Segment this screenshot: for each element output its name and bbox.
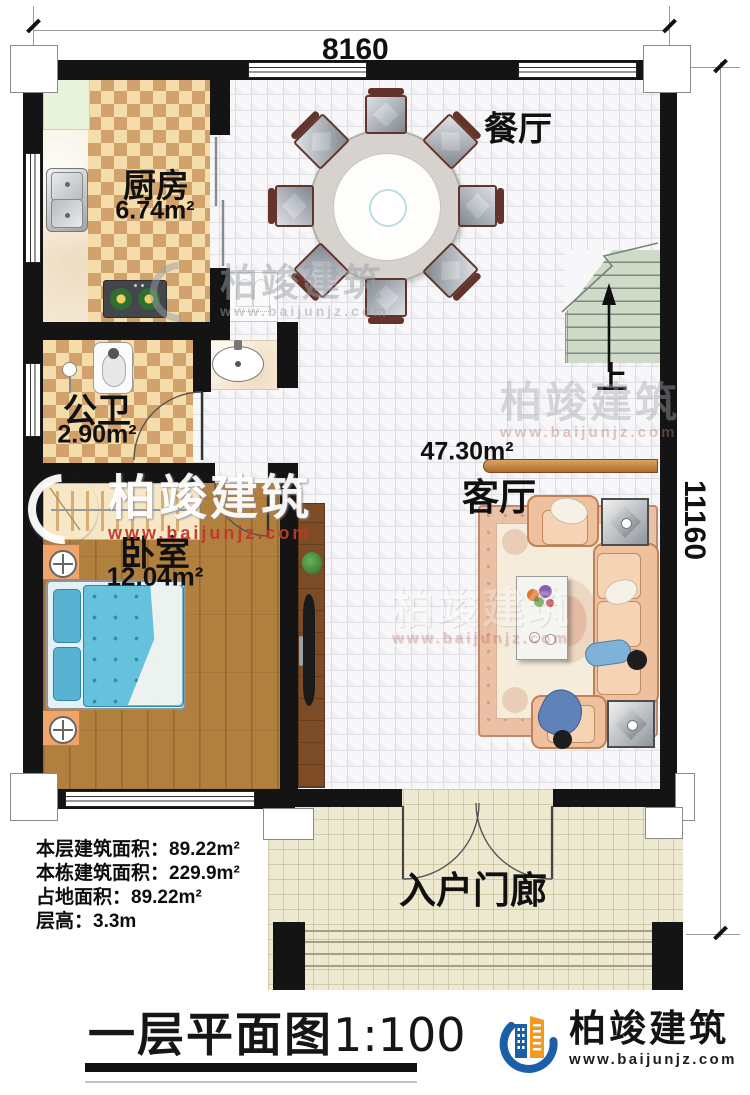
dining-chair: [365, 88, 407, 134]
porch-step: [305, 965, 652, 967]
dining-label: 餐厅: [484, 102, 552, 151]
info-floor-area: 本层建筑面积：89.22m²: [36, 838, 240, 862]
bedroom-area: 12.04m²: [107, 562, 204, 593]
info-floor-height: 层高：3.3m: [36, 910, 240, 934]
nightstand: [42, 710, 80, 746]
porch-pillar-left: [273, 922, 305, 990]
coffee-table: [516, 576, 568, 660]
person-head: [553, 730, 572, 749]
extension-line-right-bottom: [686, 934, 740, 935]
title-underline-thick: [85, 1063, 417, 1072]
axis-box: [10, 45, 58, 93]
extension-line-right-top: [686, 67, 740, 68]
wall-bottom-living-left: [295, 789, 402, 807]
kitchen-stove: [103, 280, 167, 318]
wall-bedroom-top-left: [23, 463, 215, 483]
brand-logo-icon: [497, 1002, 559, 1076]
living-label: 客厅: [462, 467, 536, 521]
plan-title: 一层平面图1:100: [88, 996, 466, 1065]
dimension-height-label: 11160: [677, 480, 711, 560]
info-total-area: 本栋建筑面积：229.9m²: [36, 862, 240, 886]
porch-step: [305, 953, 652, 955]
kitchen-area: 6.74m²: [115, 197, 194, 226]
brand-name: 柏竣建筑: [569, 1010, 737, 1047]
plan-title-text: 一层平面图: [88, 1008, 333, 1061]
dimension-line-top: [33, 30, 669, 31]
wall-kitchen-right-upper: [210, 78, 230, 135]
dining-chair: [458, 185, 504, 227]
person-head: [627, 650, 647, 670]
bathroom-area: 2.90m²: [57, 421, 136, 450]
window-kitchen: [25, 153, 41, 263]
wall-kitchen-bottom: [43, 322, 230, 340]
dining-chair: [268, 185, 314, 227]
wall-right: [660, 60, 677, 809]
sofa: [593, 543, 659, 705]
wall-kitchen-right-lower: [210, 268, 230, 322]
brand-url: www.baijunjz.com: [569, 1051, 737, 1068]
living-area: 47.30m²: [420, 438, 513, 467]
wall-alcove-right: [277, 322, 298, 388]
washbasin: [212, 346, 264, 382]
porch-label: 入户门廊: [399, 860, 547, 914]
floor-plan-canvas: 8160 11160: [0, 0, 750, 1095]
side-table: [607, 700, 655, 748]
nightstand: [42, 544, 80, 580]
window-bathroom: [25, 363, 41, 437]
dimension-width-label: 8160: [322, 33, 389, 67]
tv-cabinet: [298, 503, 325, 788]
axis-box: [10, 773, 58, 821]
window-top-2: [518, 62, 637, 78]
plant: [302, 552, 322, 574]
plan-scale: 1:100: [333, 1008, 466, 1062]
axis-box: [645, 807, 683, 839]
wall-bedroom-right: [280, 483, 298, 789]
wall-bathroom-right: [193, 340, 211, 392]
building-info-block: 本层建筑面积：89.22m² 本栋建筑面积：229.9m² 占地面积：89.22…: [36, 838, 240, 934]
brand-logo: 柏竣建筑 www.baijunjz.com: [497, 1002, 737, 1076]
porch-step: [305, 941, 652, 943]
info-footprint: 占地面积：89.22m²: [36, 886, 240, 910]
dining-chair: [365, 278, 407, 324]
dimension-line-right: [720, 62, 721, 937]
window-bedroom: [65, 791, 255, 807]
axis-box: [263, 808, 314, 840]
tv: [303, 594, 315, 706]
porch-step: [305, 930, 652, 932]
side-table: [601, 498, 649, 546]
stairs-up-label: 上: [597, 353, 628, 398]
dining-sideboard: [228, 272, 278, 322]
wall-bottom-living-right: [553, 789, 677, 807]
floor-drain: [62, 362, 77, 377]
axis-box: [643, 45, 691, 93]
title-underline-thin: [85, 1081, 417, 1083]
porch-pillar-right: [652, 922, 683, 990]
kitchen-sink: [46, 168, 88, 232]
bed: [46, 580, 186, 710]
wall-bedroom-top-right: [268, 463, 298, 483]
